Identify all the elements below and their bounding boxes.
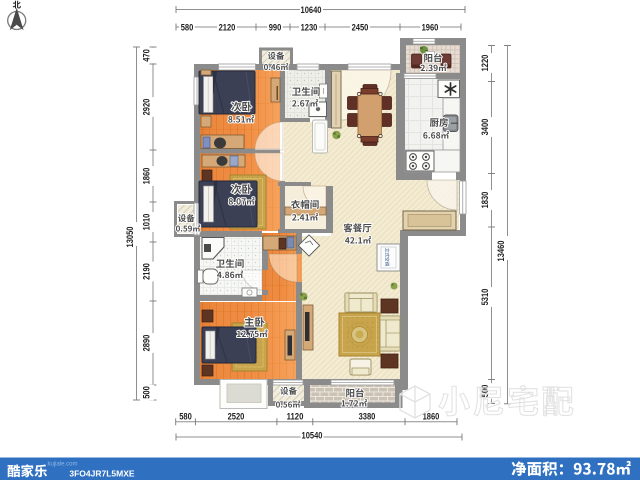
svg-text:10540: 10540 — [302, 431, 323, 441]
svg-text:3380: 3380 — [359, 412, 376, 422]
svg-text:1860: 1860 — [142, 168, 152, 185]
svg-text:1960: 1960 — [422, 23, 439, 33]
svg-text:10640: 10640 — [301, 5, 322, 15]
svg-text:2890: 2890 — [142, 335, 152, 352]
svg-text:470: 470 — [142, 49, 152, 62]
svg-text:1220: 1220 — [480, 55, 490, 72]
svg-text:13460: 13460 — [496, 241, 506, 262]
svg-text:500: 500 — [142, 386, 152, 399]
svg-text:580: 580 — [179, 412, 192, 422]
svg-text:13050: 13050 — [125, 227, 135, 248]
svg-text:2520: 2520 — [228, 412, 245, 422]
svg-text:3400: 3400 — [480, 119, 490, 136]
svg-text:2450: 2450 — [352, 23, 369, 33]
svg-text:1830: 1830 — [480, 192, 490, 209]
svg-text:2920: 2920 — [142, 99, 152, 116]
svg-text:2190: 2190 — [142, 263, 152, 280]
svg-text:2120: 2120 — [219, 23, 236, 33]
svg-text:1010: 1010 — [142, 214, 152, 231]
svg-text:3FO4JR7L5MXE: 3FO4JR7L5MXE — [69, 469, 135, 479]
svg-text:5310: 5310 — [480, 289, 490, 306]
svg-text:1120: 1120 — [287, 412, 304, 422]
svg-text:580: 580 — [181, 23, 194, 33]
svg-text:1230: 1230 — [301, 23, 318, 33]
svg-text:kujiale.com: kujiale.com — [48, 462, 78, 468]
svg-text:990: 990 — [269, 23, 282, 33]
